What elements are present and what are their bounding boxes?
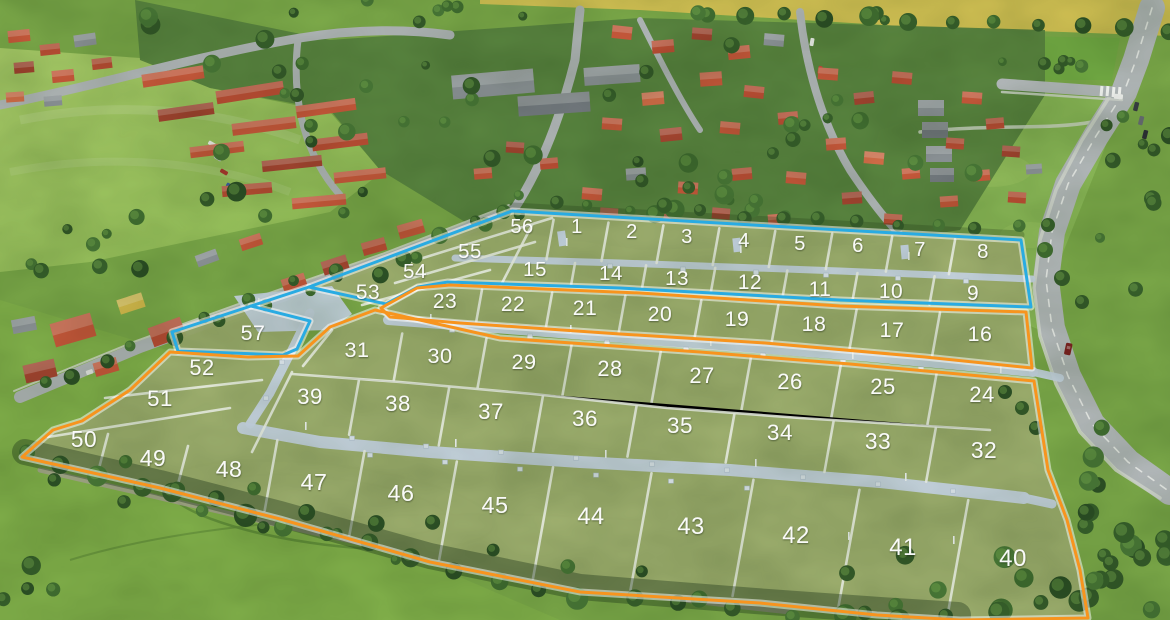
lot-3-label[interactable]: 3 xyxy=(681,226,693,248)
lot-14-label[interactable]: 14 xyxy=(599,262,623,285)
lot-48-label[interactable]: 48 xyxy=(216,456,243,482)
lot-25-label[interactable]: 25 xyxy=(870,374,895,399)
lot-5-label[interactable]: 5 xyxy=(794,233,806,255)
lot-50-label[interactable]: 50 xyxy=(71,426,97,452)
lot-16-label[interactable]: 16 xyxy=(968,322,993,346)
lot-28-label[interactable]: 28 xyxy=(597,356,622,381)
lot-29-label[interactable]: 29 xyxy=(511,349,536,374)
lot-39-label[interactable]: 39 xyxy=(297,384,323,409)
lot-9-label[interactable]: 9 xyxy=(967,282,979,305)
lot-21-label[interactable]: 21 xyxy=(573,297,597,320)
lot-15-label[interactable]: 15 xyxy=(523,258,547,281)
lot-49-label[interactable]: 49 xyxy=(140,445,166,471)
lot-56-label[interactable]: 56 xyxy=(510,216,533,238)
lot-30-label[interactable]: 30 xyxy=(427,343,452,368)
lot-26-label[interactable]: 26 xyxy=(777,369,802,394)
lot-31-label[interactable]: 31 xyxy=(344,337,369,362)
lot-54-label[interactable]: 54 xyxy=(403,260,427,283)
lot-35-label[interactable]: 35 xyxy=(667,413,693,438)
lot-53-label[interactable]: 53 xyxy=(356,281,380,304)
lot-36-label[interactable]: 36 xyxy=(572,406,598,431)
lot-57-label[interactable]: 57 xyxy=(241,321,266,345)
lot-34-label[interactable]: 34 xyxy=(767,420,793,445)
lot-27-label[interactable]: 27 xyxy=(689,363,714,388)
lot-32-label[interactable]: 32 xyxy=(971,437,997,463)
lot-38-label[interactable]: 38 xyxy=(385,391,411,416)
lot-43-label[interactable]: 43 xyxy=(677,514,704,540)
lot-13-label[interactable]: 13 xyxy=(665,267,689,290)
aerial-lot-map: 1234567891011121314151617181920212223242… xyxy=(0,0,1170,620)
lot-47-label[interactable]: 47 xyxy=(301,469,328,495)
lot-52-label[interactable]: 52 xyxy=(189,355,214,380)
lot-33-label[interactable]: 33 xyxy=(865,428,891,454)
lot-44-label[interactable]: 44 xyxy=(577,504,604,530)
lot-20-label[interactable]: 20 xyxy=(648,303,672,326)
lot-4-label[interactable]: 4 xyxy=(738,230,750,252)
lot-41-label[interactable]: 41 xyxy=(889,534,917,561)
aerial-scene: 1234567891011121314151617181920212223242… xyxy=(0,0,1170,620)
lot-7-label[interactable]: 7 xyxy=(914,239,926,261)
lot-46-label[interactable]: 46 xyxy=(388,480,415,506)
lot-11-label[interactable]: 11 xyxy=(809,278,832,301)
lot-37-label[interactable]: 37 xyxy=(478,399,504,424)
lot-22-label[interactable]: 22 xyxy=(501,293,525,316)
lot-10-label[interactable]: 10 xyxy=(879,280,903,303)
lot-45-label[interactable]: 45 xyxy=(481,492,508,518)
lot-40-label[interactable]: 40 xyxy=(999,545,1027,572)
lot-23-label[interactable]: 23 xyxy=(433,290,457,313)
lot-2-label[interactable]: 2 xyxy=(626,221,638,243)
lot-55-label[interactable]: 55 xyxy=(458,241,482,263)
lot-6-label[interactable]: 6 xyxy=(852,235,864,257)
lot-42-label[interactable]: 42 xyxy=(782,522,809,549)
lot-12-label[interactable]: 12 xyxy=(738,271,762,294)
lot-24-label[interactable]: 24 xyxy=(969,382,995,407)
lot-8-label[interactable]: 8 xyxy=(977,241,989,263)
lot-19-label[interactable]: 19 xyxy=(725,308,750,331)
lot-18-label[interactable]: 18 xyxy=(802,312,827,336)
lot-51-label[interactable]: 51 xyxy=(147,386,173,411)
lot-1-label[interactable]: 1 xyxy=(571,216,583,238)
lot-17-label[interactable]: 17 xyxy=(880,318,905,342)
